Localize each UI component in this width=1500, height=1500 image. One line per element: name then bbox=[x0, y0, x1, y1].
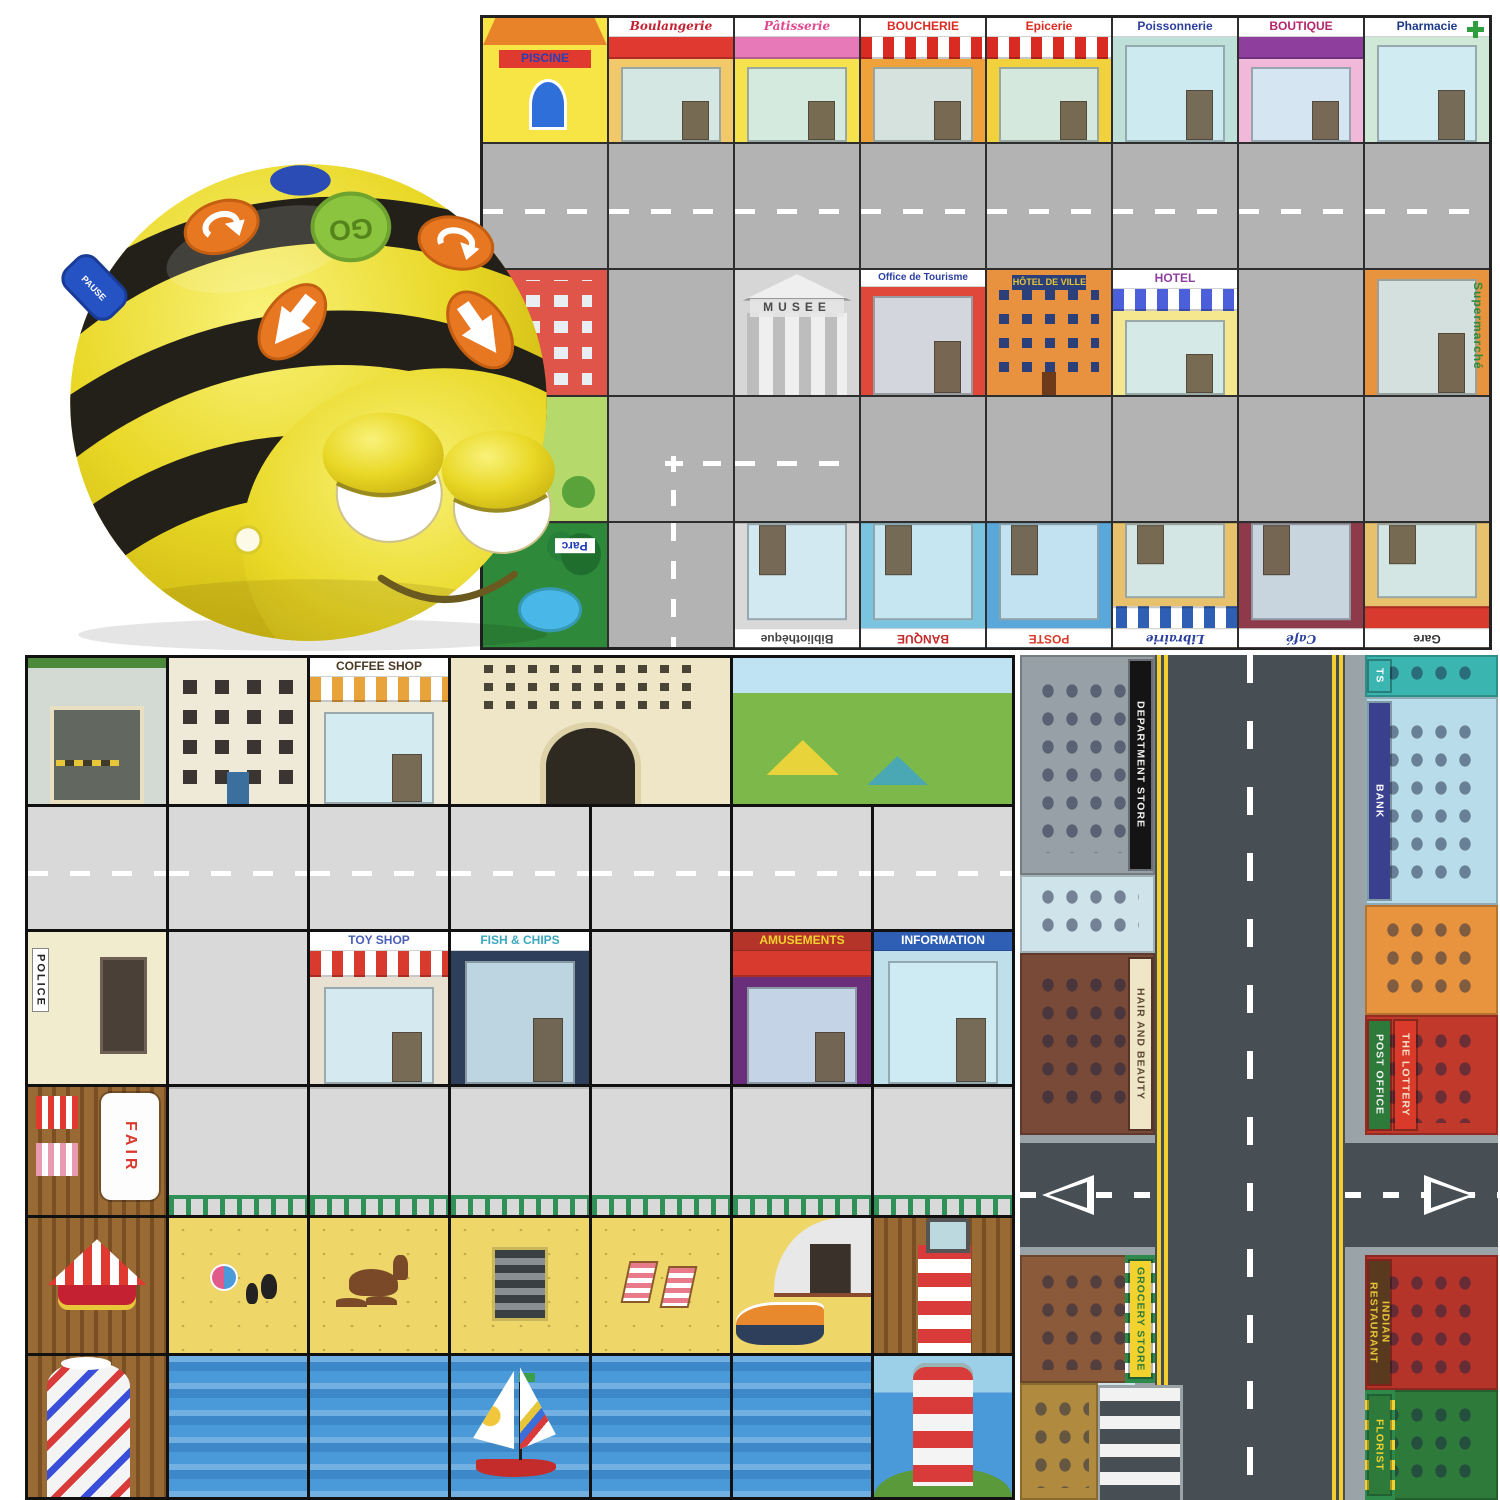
french-town-grid: PISCINEBoulangeriePâtisserieBOUCHERIEEpi… bbox=[480, 15, 1492, 650]
fair-banner: FAIR bbox=[101, 1093, 159, 1200]
florist: FLORIST bbox=[1365, 1390, 1498, 1500]
road-edge-line bbox=[1164, 655, 1168, 1500]
junction-right-arm bbox=[1345, 1135, 1498, 1255]
boulangerie-label: Boulangerie bbox=[609, 18, 733, 37]
road bbox=[987, 397, 1111, 521]
epicerie: Epicerie bbox=[987, 18, 1111, 142]
road bbox=[609, 144, 733, 268]
sea bbox=[169, 1356, 307, 1497]
bibliotheque: Bibliothèque bbox=[735, 523, 859, 647]
amusement-arcade-window bbox=[747, 987, 857, 1084]
beach-donkey bbox=[310, 1218, 448, 1354]
fair-banner-text: FAIR bbox=[121, 1121, 139, 1173]
bank: BANK bbox=[1365, 697, 1498, 905]
boutique-label: BOUTIQUE bbox=[1239, 18, 1363, 37]
hotel-label: HOTEL bbox=[1113, 270, 1237, 289]
mat-seaside-town: COFFEE SHOPPOLICETOY SHOPFISH & CHIPSAMU… bbox=[25, 655, 1015, 1500]
boucherie: BOUCHERIE bbox=[861, 18, 985, 142]
boutique-window bbox=[1251, 67, 1350, 142]
fish-and-chips-label: FISH & CHIPS bbox=[451, 932, 589, 951]
police-station-label: POLICE bbox=[32, 948, 49, 1013]
sailboat bbox=[451, 1356, 589, 1497]
librairie-window bbox=[1125, 523, 1224, 598]
indian-restaurant-sign: INDIAN RESTAURANT bbox=[1369, 1261, 1390, 1384]
car-park bbox=[28, 658, 166, 804]
post-office-sign: POST OFFICE bbox=[1369, 1021, 1390, 1129]
grocery-store-windows bbox=[1036, 1268, 1139, 1370]
patisserie-window bbox=[747, 67, 846, 142]
road bbox=[735, 397, 859, 521]
cafe-window bbox=[1251, 523, 1350, 620]
road bbox=[1239, 270, 1363, 394]
hotel-de-ville-label: HÔTEL DE VILLE bbox=[1012, 275, 1086, 289]
toy-shop-awning bbox=[310, 951, 448, 977]
coffee-shop-window bbox=[324, 712, 434, 805]
gare-label: Gare bbox=[1365, 628, 1489, 647]
road bbox=[1365, 144, 1489, 268]
promenade bbox=[169, 1087, 307, 1214]
cafe-label: Café bbox=[1239, 628, 1363, 647]
clear-button bbox=[270, 165, 331, 195]
department-store-sign: DEPARTMENT STORE bbox=[1130, 661, 1151, 869]
bee-bot-product-collage: PISCINEBoulangeriePâtisserieBOUCHERIEEpi… bbox=[0, 0, 1500, 1500]
fish-and-chips-window bbox=[465, 961, 575, 1084]
poissonnerie: Poissonnerie bbox=[1113, 18, 1237, 142]
helter-skelter bbox=[28, 1356, 166, 1497]
epicerie-label: Epicerie bbox=[987, 18, 1111, 37]
road-edge-line bbox=[1157, 655, 1161, 1500]
tourist-information-label: INFORMATION bbox=[874, 932, 1012, 951]
road bbox=[733, 807, 871, 929]
sports-shop: TS bbox=[1365, 655, 1498, 697]
banque: BANQUE bbox=[861, 523, 985, 647]
gare-awning bbox=[1365, 606, 1489, 628]
tavern bbox=[1020, 1383, 1098, 1500]
mat-french-town: PISCINEBoulangeriePâtisserieBOUCHERIEEpi… bbox=[480, 15, 1492, 650]
poissonnerie-window bbox=[1125, 45, 1224, 142]
promenade bbox=[451, 1087, 589, 1214]
patisserie-label: Pâtisserie bbox=[735, 18, 859, 37]
promenade bbox=[874, 1087, 1012, 1214]
post-office: POST OFFICETHE LOTTERY bbox=[1365, 1015, 1498, 1135]
supermarche-label: Supermarché bbox=[1468, 280, 1486, 372]
pharmacie-window bbox=[1377, 45, 1476, 142]
office-de-tourisme: Office de Tourisme bbox=[861, 270, 985, 394]
librairie-label: Librairie bbox=[1113, 628, 1237, 647]
boulangerie-window bbox=[621, 67, 720, 142]
glass-canopy-shop-windows bbox=[1036, 883, 1139, 945]
beach-deckchairs bbox=[592, 1218, 730, 1354]
zebra-crossing bbox=[1100, 1388, 1180, 1500]
grocery-store-sign: GROCERY STORE bbox=[1130, 1261, 1151, 1377]
road bbox=[169, 807, 307, 929]
pier-lighthouse-top bbox=[874, 1218, 1012, 1354]
tourist-information: INFORMATION bbox=[874, 932, 1012, 1084]
bee-bot-illustration: GO PAUSE bbox=[48, 138, 573, 653]
epicerie-awning bbox=[987, 37, 1111, 59]
sports-shop-sign: TS bbox=[1369, 661, 1390, 691]
patisserie-awning bbox=[735, 37, 859, 59]
police-station: POLICE bbox=[28, 932, 166, 1084]
florist-windows bbox=[1381, 1401, 1482, 1489]
town-house-windows bbox=[1381, 916, 1482, 1004]
road bbox=[874, 807, 1012, 929]
indian-restaurant: INDIAN RESTAURANT bbox=[1365, 1255, 1498, 1390]
road bbox=[451, 807, 589, 929]
amusement-arcade-awning bbox=[733, 951, 871, 977]
epicerie-window bbox=[999, 67, 1098, 142]
office-de-tourisme-label: Office de Tourisme bbox=[861, 270, 985, 287]
road bbox=[861, 144, 985, 268]
promenade bbox=[733, 1087, 871, 1214]
boucherie-label: BOUCHERIE bbox=[861, 18, 985, 37]
road bbox=[592, 807, 730, 929]
cafe: Café bbox=[1239, 523, 1363, 647]
boulangerie-awning bbox=[609, 37, 733, 59]
road bbox=[609, 270, 733, 394]
grand-hotel bbox=[451, 658, 730, 804]
beach-steps bbox=[451, 1218, 589, 1354]
mat-road-town: DEPARTMENT STOREHAIR AND BEAUTYGROCERY S… bbox=[1020, 655, 1498, 1500]
junction-left-arm bbox=[1020, 1135, 1155, 1255]
musee: MUSEE bbox=[735, 270, 859, 394]
flats bbox=[169, 658, 307, 804]
pier-fairground: FAIR bbox=[28, 1087, 166, 1214]
gare: Gare bbox=[1365, 523, 1489, 647]
lifeboat-station bbox=[733, 1218, 871, 1354]
coffee-shop-awning bbox=[310, 677, 448, 702]
bibliotheque-label: Bibliothèque bbox=[735, 628, 859, 647]
amusement-arcade: AMUSEMENTS bbox=[733, 932, 871, 1084]
sea bbox=[592, 1356, 730, 1497]
post-office-second-sign: THE LOTTERY bbox=[1395, 1021, 1416, 1129]
go-button: GO bbox=[313, 194, 390, 261]
amusement-arcade-label: AMUSEMENTS bbox=[733, 932, 871, 951]
road bbox=[735, 144, 859, 268]
toy-shop: TOY SHOP bbox=[310, 932, 448, 1084]
pharmacie: Pharmacie bbox=[1365, 18, 1489, 142]
indian-restaurant-windows bbox=[1381, 1269, 1482, 1377]
road bbox=[987, 144, 1111, 268]
toy-shop-label: TOY SHOP bbox=[310, 932, 448, 951]
give-way-marking bbox=[1424, 1175, 1476, 1215]
musee-label: MUSEE bbox=[750, 299, 844, 317]
promenade bbox=[310, 1087, 448, 1214]
patisserie: Pâtisserie bbox=[735, 18, 859, 142]
bank-windows bbox=[1381, 718, 1482, 884]
pavement bbox=[592, 932, 730, 1084]
boutique-awning bbox=[1239, 37, 1363, 59]
road-edge-line bbox=[1339, 655, 1343, 1500]
hotel-window bbox=[1125, 320, 1224, 395]
department-store-windows bbox=[1036, 677, 1139, 853]
supermarche: Supermarché bbox=[1365, 270, 1489, 394]
poste-label: POSTE bbox=[987, 628, 1111, 647]
robot-led bbox=[235, 527, 261, 553]
gare-window bbox=[1377, 523, 1476, 598]
road bbox=[28, 807, 166, 929]
supermarche-window bbox=[1377, 279, 1476, 395]
seaside-town-grid: COFFEE SHOPPOLICETOY SHOPFISH & CHIPSAMU… bbox=[25, 655, 1015, 1500]
hotel-awning bbox=[1113, 289, 1237, 311]
boulangerie: Boulangerie bbox=[609, 18, 733, 142]
banque-window bbox=[873, 523, 972, 620]
road bbox=[1239, 397, 1363, 521]
svg-text:GO: GO bbox=[328, 212, 374, 247]
road bbox=[1113, 144, 1237, 268]
tourist-information-window bbox=[888, 961, 998, 1084]
road bbox=[609, 523, 733, 647]
bank-sign: BANK bbox=[1369, 703, 1390, 899]
poste: POSTE bbox=[987, 523, 1111, 647]
sailboat-hull bbox=[476, 1459, 556, 1477]
hair-and-beauty-windows bbox=[1036, 971, 1139, 1117]
pier-carousel bbox=[28, 1218, 166, 1354]
banque-label: BANQUE bbox=[861, 628, 985, 647]
bee-bot-robot: GO PAUSE bbox=[48, 138, 573, 653]
coffee-shop: COFFEE SHOP bbox=[310, 658, 448, 804]
road-corner bbox=[609, 397, 733, 521]
boucherie-window bbox=[873, 67, 972, 142]
road bbox=[310, 807, 448, 929]
tavern-windows bbox=[1029, 1395, 1088, 1489]
road bbox=[1239, 144, 1363, 268]
sea bbox=[733, 1356, 871, 1497]
hotel-de-ville: HÔTEL DE VILLE bbox=[987, 270, 1111, 394]
glass-canopy-shop bbox=[1020, 875, 1155, 953]
librairie-awning bbox=[1113, 606, 1237, 628]
beach-toys bbox=[169, 1218, 307, 1354]
lighthouse bbox=[874, 1356, 1012, 1497]
poste-window bbox=[999, 523, 1098, 620]
poissonnerie-label: Poissonnerie bbox=[1113, 18, 1237, 37]
road-center-line bbox=[1247, 655, 1253, 1500]
main-road bbox=[1135, 655, 1365, 1500]
fish-and-chips: FISH & CHIPS bbox=[451, 932, 589, 1084]
hair-and-beauty-sign: HAIR AND BEAUTY bbox=[1130, 959, 1151, 1129]
sea bbox=[310, 1356, 448, 1497]
librairie: Librairie bbox=[1113, 523, 1237, 647]
bibliotheque-window bbox=[747, 523, 846, 620]
office-de-tourisme-window bbox=[873, 296, 972, 395]
town-house bbox=[1365, 905, 1498, 1015]
give-way-marking bbox=[1042, 1175, 1094, 1215]
toy-shop-window bbox=[324, 987, 434, 1084]
road bbox=[1365, 397, 1489, 521]
department-store: DEPARTMENT STORE bbox=[1020, 655, 1155, 875]
florist-sign: FLORIST bbox=[1369, 1396, 1390, 1494]
promenade bbox=[592, 1087, 730, 1214]
boutique: BOUTIQUE bbox=[1239, 18, 1363, 142]
hair-and-beauty: HAIR AND BEAUTY bbox=[1020, 953, 1155, 1135]
boucherie-awning bbox=[861, 37, 985, 59]
hotel: HOTEL bbox=[1113, 270, 1237, 394]
pharmacy-cross-icon bbox=[1467, 21, 1484, 38]
piscine-label: PISCINE bbox=[499, 50, 591, 68]
sports-shop-windows bbox=[1381, 659, 1482, 693]
road bbox=[1113, 397, 1237, 521]
pavement bbox=[169, 932, 307, 1084]
road bbox=[861, 397, 985, 521]
piscine: PISCINE bbox=[483, 18, 607, 142]
road-edge-line bbox=[1332, 655, 1336, 1500]
campsite bbox=[733, 658, 1012, 804]
grocery-store: GROCERY STORE bbox=[1020, 1255, 1155, 1383]
coffee-shop-label: COFFEE SHOP bbox=[310, 658, 448, 677]
